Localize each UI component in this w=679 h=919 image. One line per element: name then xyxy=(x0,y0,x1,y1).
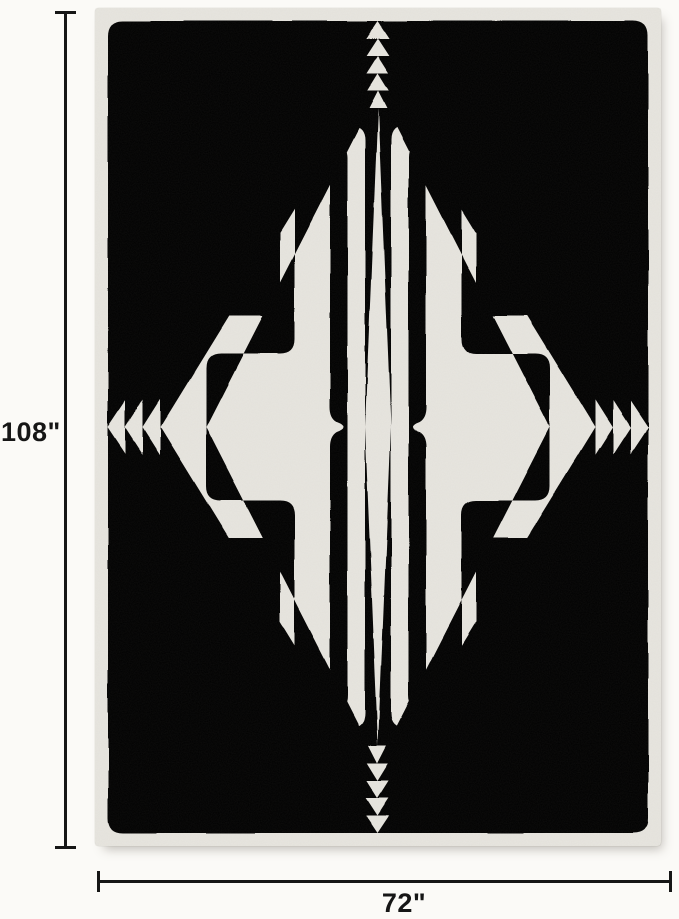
width-dimension-left-cap xyxy=(97,871,100,892)
height-dimension-label: 108" xyxy=(1,417,59,448)
width-dimension-right-cap xyxy=(669,871,672,892)
rug-pattern-svg xyxy=(95,8,661,846)
height-dimension-bottom-cap xyxy=(55,846,76,849)
width-dimension-line xyxy=(97,880,672,883)
product-diagram: 108" 72" xyxy=(0,0,679,919)
height-dimension-top-cap xyxy=(55,11,76,14)
width-dimension-label: 72" xyxy=(352,888,456,919)
height-dimension-line xyxy=(64,12,67,849)
rug-image xyxy=(95,8,661,846)
rug-texture-overlay xyxy=(95,8,661,846)
